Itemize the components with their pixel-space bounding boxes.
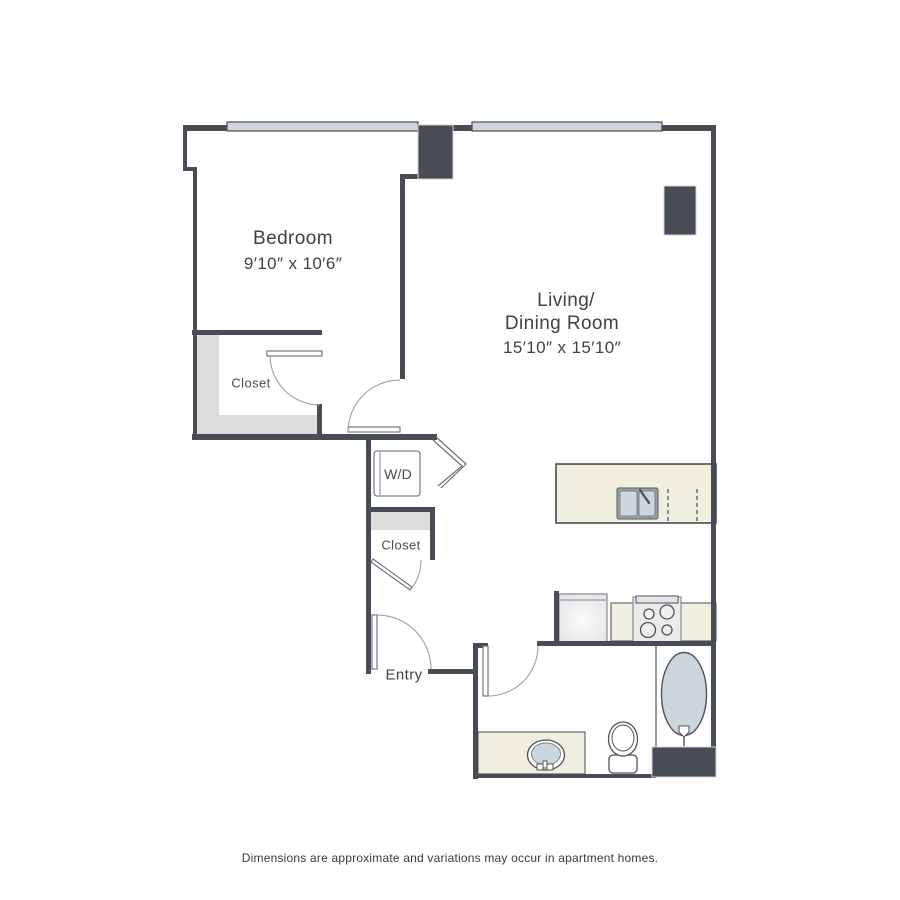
disclaimer-text: Dimensions are approximate and variation… bbox=[242, 851, 658, 865]
bathroom-sink bbox=[528, 740, 565, 770]
bedroom-label: Bedroom bbox=[253, 228, 333, 250]
bedroom-door bbox=[348, 380, 400, 432]
floor-plan: Bedroom 9′10″ x 10′6″ Living/ Dining Roo… bbox=[0, 0, 900, 900]
entry-label: Entry bbox=[385, 667, 422, 684]
stove bbox=[633, 596, 681, 642]
bedroom-dimensions: 9′10″ x 10′6″ bbox=[244, 254, 342, 274]
bedroom-closet-label: Closet bbox=[231, 376, 270, 391]
floor-plan-drawing bbox=[0, 0, 900, 900]
entry-door bbox=[372, 615, 431, 669]
kitchen-sink bbox=[617, 488, 658, 519]
bedroom-closet-door bbox=[267, 351, 322, 405]
walls bbox=[183, 125, 716, 779]
living-room-label-line2: Dining Room bbox=[505, 313, 619, 335]
hall-closet-label: Closet bbox=[381, 538, 420, 553]
washer-dryer-label: W/D bbox=[384, 466, 412, 482]
bathtub bbox=[656, 646, 707, 747]
living-room-dimensions: 15′10″ x 15′10″ bbox=[503, 338, 621, 358]
bathroom-door bbox=[483, 646, 538, 696]
refrigerator bbox=[559, 594, 607, 642]
toilet bbox=[609, 722, 638, 773]
hall-angled-wall bbox=[433, 437, 466, 488]
hall-closet-shelf bbox=[371, 512, 430, 530]
hall-closet-door bbox=[371, 559, 421, 590]
living-room-label-line1: Living/ bbox=[537, 290, 595, 312]
